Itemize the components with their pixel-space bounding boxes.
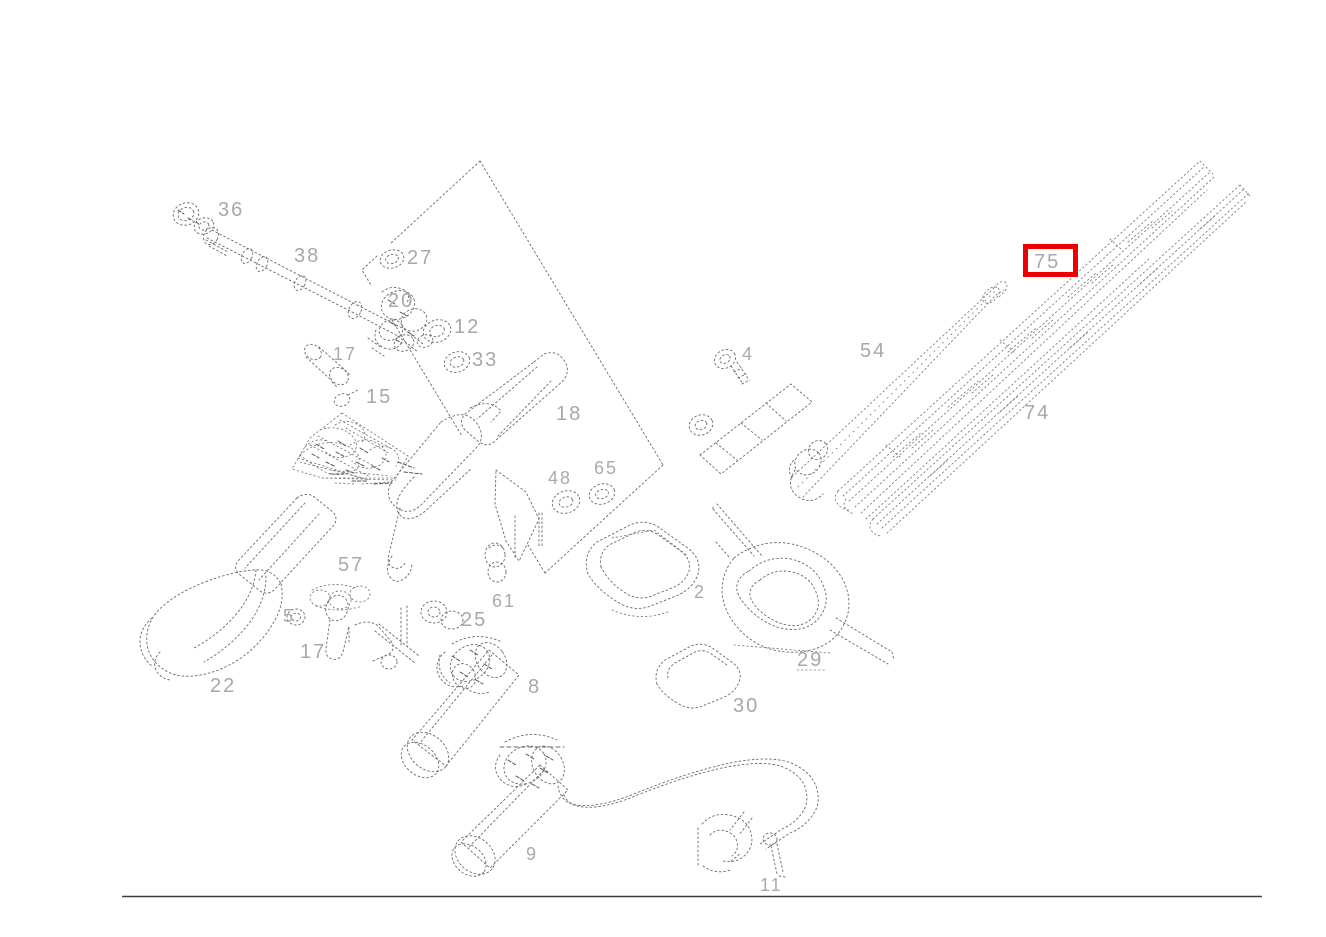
svg-text:8: 8 — [528, 676, 541, 698]
svg-text:20: 20 — [388, 290, 414, 312]
svg-text:17: 17 — [300, 641, 326, 663]
svg-text:18: 18 — [556, 403, 582, 425]
svg-text:22: 22 — [210, 675, 236, 697]
svg-text:48: 48 — [548, 468, 572, 488]
svg-text:61: 61 — [492, 591, 516, 611]
svg-text:27: 27 — [407, 247, 433, 269]
svg-text:36: 36 — [218, 199, 244, 221]
svg-text:29: 29 — [797, 649, 823, 671]
svg-text:25: 25 — [461, 609, 487, 631]
svg-text:15: 15 — [366, 386, 392, 408]
svg-text:33: 33 — [472, 349, 498, 371]
svg-text:4: 4 — [742, 344, 754, 364]
svg-text:38: 38 — [294, 245, 320, 267]
svg-text:54: 54 — [860, 340, 886, 362]
svg-text:30: 30 — [733, 695, 759, 717]
svg-text:2: 2 — [694, 582, 706, 602]
svg-text:11: 11 — [760, 875, 783, 895]
svg-text:5: 5 — [283, 606, 295, 626]
svg-text:12: 12 — [454, 316, 480, 338]
svg-text:17: 17 — [333, 344, 357, 364]
svg-text:75: 75 — [1034, 251, 1060, 273]
svg-text:57: 57 — [338, 554, 364, 576]
svg-text:9: 9 — [526, 844, 538, 864]
svg-text:65: 65 — [594, 458, 618, 478]
svg-text:74: 74 — [1024, 402, 1050, 424]
